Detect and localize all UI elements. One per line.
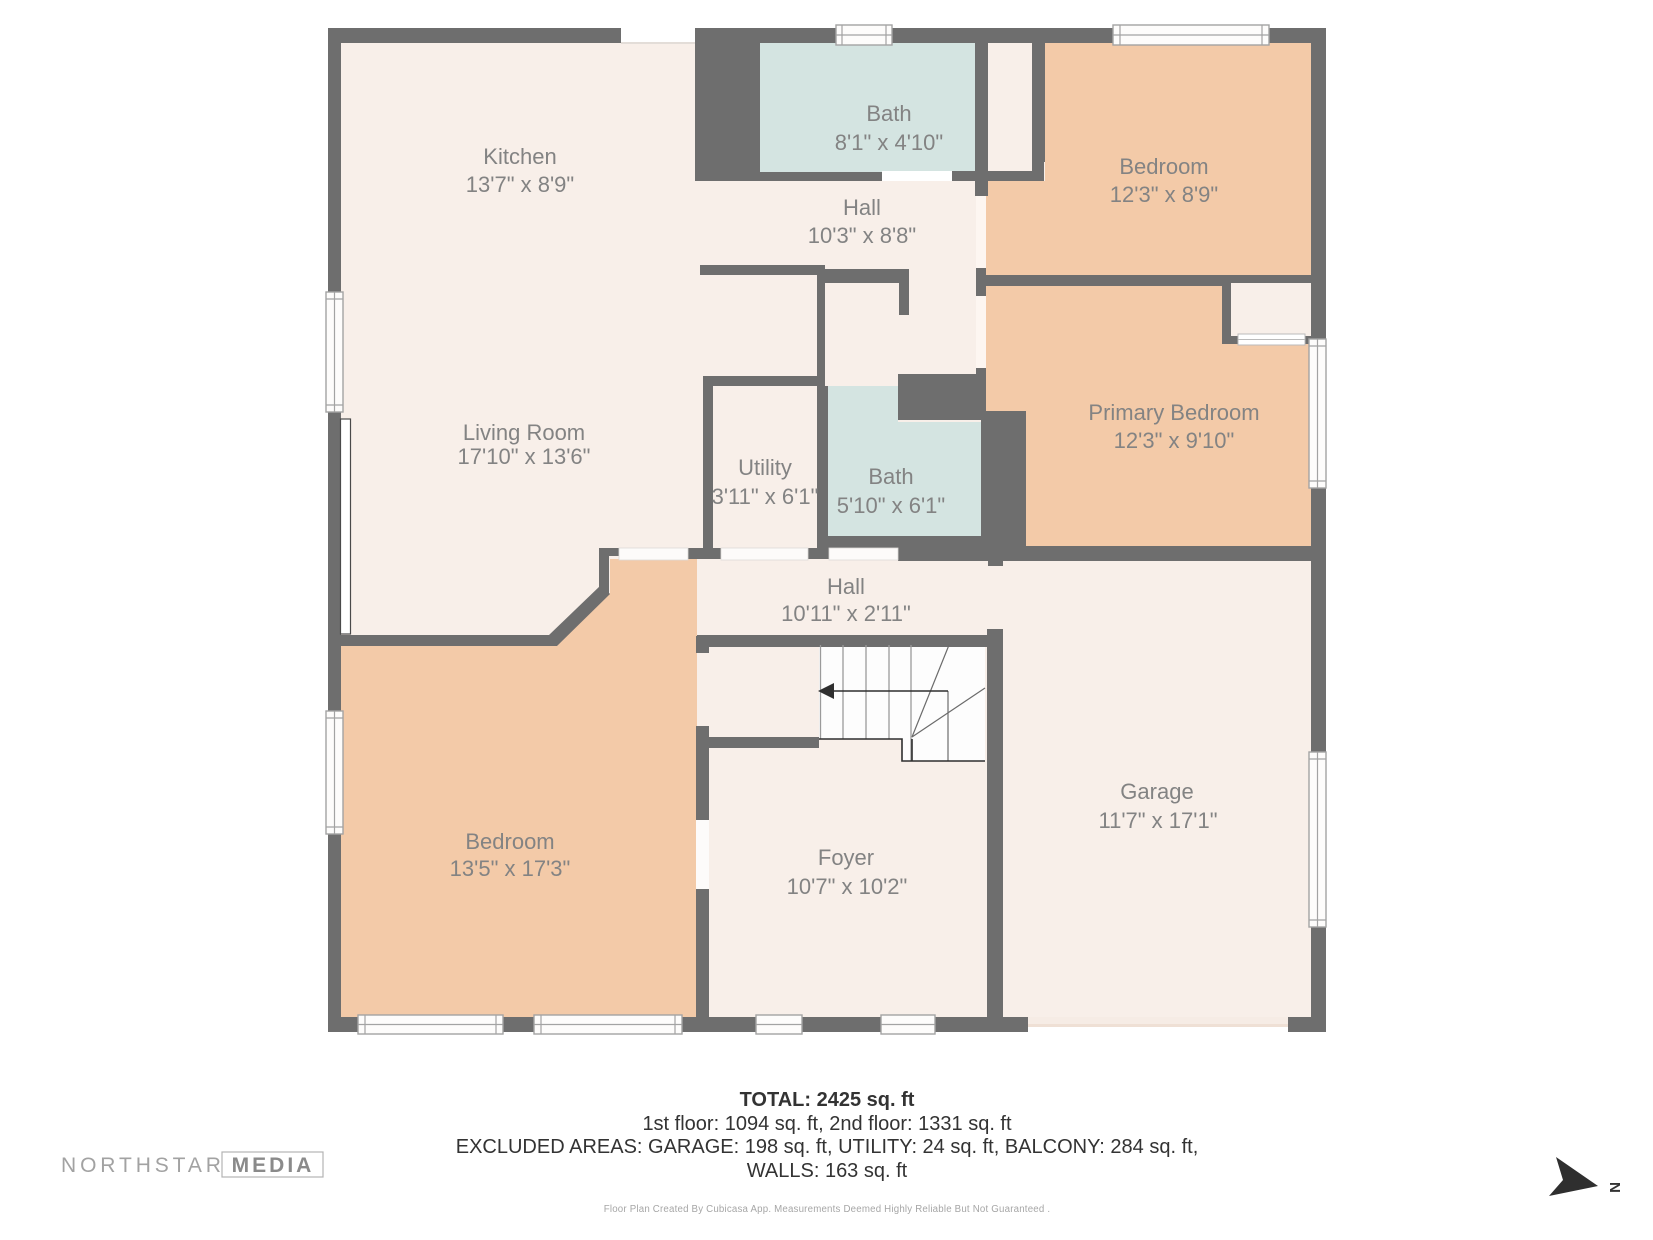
svg-text:Bedroom: Bedroom [465, 829, 554, 854]
svg-text:Bath: Bath [868, 464, 913, 489]
svg-text:5'10" x 6'1": 5'10" x 6'1" [837, 493, 945, 518]
svg-text:1st floor: 1094 sq. ft, 2nd fl: 1st floor: 1094 sq. ft, 2nd floor: 1331 … [642, 1113, 1012, 1135]
svg-text:Bedroom: Bedroom [1119, 154, 1208, 179]
svg-text:10'11" x 2'11": 10'11" x 2'11" [781, 601, 911, 626]
svg-text:EXCLUDED AREAS: GARAGE: 198 sq: EXCLUDED AREAS: GARAGE: 198 sq. ft, UTIL… [456, 1136, 1199, 1158]
svg-text:3'11" x 6'1": 3'11" x 6'1" [712, 484, 819, 509]
svg-text:Utility: Utility [738, 455, 792, 480]
svg-text:N: N [1606, 1182, 1623, 1193]
svg-text:10'7" x 10'2": 10'7" x 10'2" [787, 874, 908, 899]
svg-text:TOTAL: 2425 sq. ft: TOTAL: 2425 sq. ft [740, 1089, 915, 1111]
svg-text:WALLS: 163 sq. ft: WALLS: 163 sq. ft [747, 1160, 908, 1182]
svg-text:12'3" x 8'9": 12'3" x 8'9" [1110, 182, 1218, 207]
svg-text:13'7" x 8'9": 13'7" x 8'9" [466, 172, 574, 197]
svg-text:13'5" x 17'3": 13'5" x 17'3" [450, 856, 571, 881]
svg-text:Living Room: Living Room [463, 420, 585, 445]
svg-text:NORTHSTAR: NORTHSTAR [61, 1154, 225, 1177]
svg-text:8'1" x 4'10": 8'1" x 4'10" [835, 130, 943, 155]
svg-text:12'3" x 9'10": 12'3" x 9'10" [1114, 428, 1235, 453]
svg-text:11'7" x 17'1": 11'7" x 17'1" [1098, 808, 1217, 833]
svg-text:MEDIA: MEDIA [232, 1154, 315, 1177]
svg-text:Hall: Hall [843, 195, 881, 220]
svg-text:17'10" x 13'6": 17'10" x 13'6" [458, 444, 591, 469]
svg-text:Primary Bedroom: Primary Bedroom [1088, 400, 1259, 425]
svg-text:Garage: Garage [1120, 779, 1193, 804]
svg-text:Kitchen: Kitchen [483, 144, 556, 169]
svg-text:Foyer: Foyer [818, 845, 874, 870]
svg-text:Bath: Bath [866, 101, 911, 126]
svg-text:Hall: Hall [827, 574, 865, 599]
svg-text:10'3" x 8'8": 10'3" x 8'8" [808, 223, 916, 248]
svg-text:Floor Plan Created By Cubicasa: Floor Plan Created By Cubicasa App. Meas… [604, 1204, 1050, 1215]
